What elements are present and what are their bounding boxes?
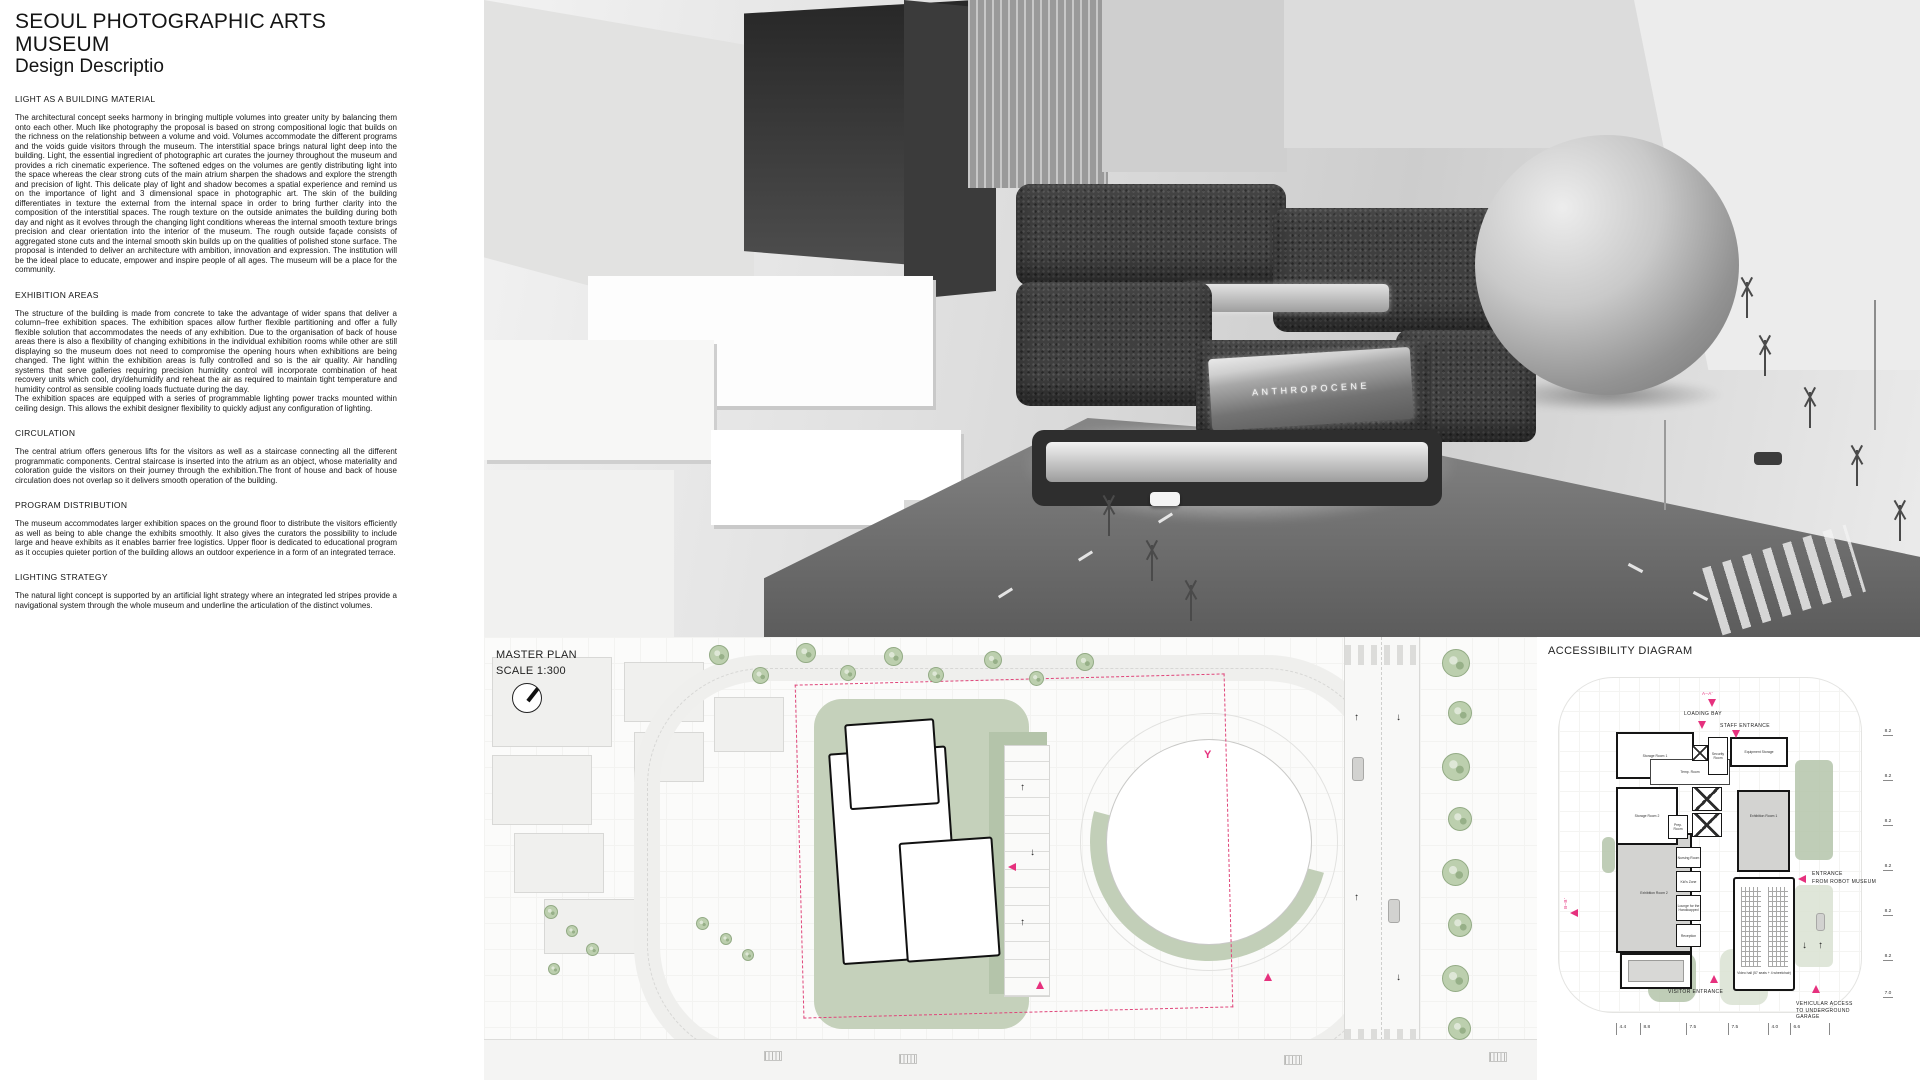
tree-icon (720, 933, 732, 945)
plaza-entry-marker-icon (1204, 749, 1211, 761)
tree-icon (840, 665, 856, 681)
room-label: Reception (1677, 933, 1700, 937)
vehicular-line1: VEHICULAR ACCESS (1796, 1001, 1853, 1008)
room-label: Prep. Room (1669, 823, 1687, 832)
room-label: Security Room (1709, 752, 1727, 761)
page-subtitle: Design Descriptio (15, 56, 397, 78)
visitor-entrance-label: VISITOR ENTRANCE (1668, 989, 1723, 997)
tree-icon (586, 943, 599, 956)
tree-icon (1856, 450, 1858, 486)
crosswalk (1345, 645, 1419, 665)
light-pole (1874, 300, 1876, 430)
vehicular-line3: GARAGE (1796, 1014, 1853, 1021)
museum-base (1032, 430, 1442, 506)
context-tower-striped (968, 0, 1108, 188)
stair-icon (1284, 1055, 1302, 1065)
staff-entrance-arrow-icon (1732, 730, 1740, 738)
site-entry-arrow-icon (1264, 973, 1272, 981)
traffic-arrow-icon (1354, 707, 1359, 725)
page-title: SEOUL PHOTOGRAPHIC ARTS MUSEUM (15, 10, 397, 56)
section-marker-a-flag-icon (1708, 699, 1716, 707)
room-label: Equipment Storage (1732, 750, 1786, 754)
tree-icon (1190, 585, 1192, 621)
section-circulation: CIRCULATION The central atrium offers ge… (15, 428, 397, 485)
white-volume (484, 470, 674, 637)
traffic-arrow-icon (1396, 707, 1401, 725)
room-video-hall: Video hall (57 seats + 4 wheelchair) (1733, 877, 1795, 991)
tree-icon (796, 643, 816, 663)
tree-icon (752, 667, 769, 684)
elevator-core (1692, 745, 1708, 761)
tree-icon (1764, 340, 1766, 376)
section-heading: EXHIBITION AREAS (15, 290, 397, 300)
car (1150, 492, 1180, 506)
light-pole (1664, 420, 1666, 510)
section-marker-a: A–A' (1702, 691, 1713, 696)
context-slab (1102, 0, 1287, 172)
tree-icon (1448, 913, 1472, 937)
north-arrow-icon (512, 683, 542, 713)
tree-icon (1029, 671, 1044, 686)
museum-mid-left-volume (1016, 282, 1212, 406)
room-nursing: Nursing Room (1676, 847, 1701, 868)
room-label: Storage Room 1 (1618, 753, 1692, 757)
white-volume (484, 340, 714, 460)
vehicular-access-arrow-icon (1812, 985, 1820, 993)
loading-bay-label: LOADING BAY (1684, 711, 1722, 719)
billboard-text: ANTHROPOCENE (1252, 380, 1370, 397)
car (1754, 452, 1782, 465)
dimension: 4.4 (1616, 1023, 1640, 1035)
accessibility-title: ACCESSIBILITY DIAGRAM (1548, 645, 1693, 657)
section-marker-b-flag-icon (1570, 909, 1578, 917)
vehicular-access-label: VEHICULAR ACCESS TO UNDERGROUND GARAGE (1796, 1001, 1853, 1021)
vertical-road (1344, 637, 1420, 1080)
tree-icon (1442, 965, 1469, 992)
dimension: 8.2 (1876, 774, 1900, 779)
room-label: Nursing Room (1677, 855, 1700, 859)
dimension: 4.0 (1768, 1023, 1790, 1035)
section-heading: LIGHT AS A BUILDING MATERIAL (15, 94, 397, 104)
accessibility-diagram: ACCESSIBILITY DIAGRAM Exhibition Room 2 … (1540, 637, 1920, 1080)
elevator-core (1692, 813, 1722, 837)
tree-icon (1442, 859, 1469, 886)
section-body: The central atrium offers generous lifts… (15, 447, 397, 485)
traffic-arrow-icon (1818, 935, 1823, 953)
loading-bay-arrow-icon (1698, 721, 1706, 729)
master-plan-scale: SCALE 1:300 (496, 664, 577, 680)
section-exhibition: EXHIBITION AREAS The structure of the bu… (15, 290, 397, 414)
robot-entrance-label: ENTRANCE FROM ROBOT MUSEUM (1812, 871, 1876, 886)
dimension: 6.6 (1790, 1023, 1830, 1035)
room-annex (1620, 953, 1692, 989)
section-program: PROGRAM DISTRIBUTION The museum accommod… (15, 500, 397, 557)
elevator-core (1692, 787, 1722, 811)
room-equipment: Equipment Storage (1730, 737, 1788, 767)
car-icon (1388, 899, 1400, 923)
room-kids: Kid's Zone (1676, 871, 1701, 892)
section-lighting: LIGHTING STRATEGY The natural light conc… (15, 572, 397, 610)
room-label: Kid's Zone (1677, 879, 1700, 883)
tree-icon (566, 925, 578, 937)
context-building (492, 755, 592, 825)
green-area (1795, 760, 1833, 860)
tree-icon (884, 647, 903, 666)
presentation-board: SEOUL PHOTOGRAPHIC ARTS MUSEUM Design De… (0, 0, 1920, 1080)
room-reception: Reception (1676, 924, 1701, 947)
master-plan-title: MASTER PLAN (496, 648, 577, 664)
tree-icon (928, 667, 944, 683)
room-label: Exhibition Room 1 (1739, 814, 1788, 818)
dimension: 7.0 (1876, 991, 1900, 996)
green-area (1602, 837, 1615, 873)
site-boundary-dashed (795, 673, 1234, 1018)
dimension: 8.2 (1876, 954, 1900, 959)
room-exhibition1: Exhibition Room 1 (1737, 790, 1790, 872)
tree-icon (1448, 1017, 1471, 1040)
section-body: The structure of the building is made fr… (15, 309, 397, 414)
tree-icon (1746, 282, 1748, 318)
room-security: Security Room (1708, 737, 1728, 775)
annex-terrace (1628, 960, 1684, 982)
bottom-road (484, 1039, 1537, 1080)
tree-icon (696, 917, 709, 930)
tree-icon (544, 905, 558, 919)
site-entry-arrow-icon (1036, 981, 1044, 989)
section-light: LIGHT AS A BUILDING MATERIAL The archite… (15, 94, 397, 275)
section-body: The museum accommodates larger exhibitio… (15, 519, 397, 557)
exterior-render: ANTHROPOCENE (484, 0, 1920, 637)
tree-icon (984, 651, 1002, 669)
traffic-arrow-icon (1396, 967, 1401, 985)
site-entry-arrow-icon (1008, 863, 1016, 871)
car-icon (1816, 913, 1825, 931)
tree-icon (1448, 701, 1472, 725)
room-label: Lounge for the Handicapped (1677, 904, 1700, 913)
section-marker-b: B–B' (1563, 898, 1568, 909)
section-body: The architectural concept seeks harmony … (15, 113, 397, 275)
museum-window-band (1184, 284, 1389, 312)
museum-lobby-glass (1046, 442, 1428, 482)
room-lounge: Lounge for the Handicapped (1676, 895, 1701, 921)
dimension: 8.8 (1640, 1023, 1686, 1035)
museum-screen-volume: ANTHROPOCENE (1196, 340, 1431, 440)
stair-icon (1489, 1052, 1507, 1062)
tree-icon (1151, 545, 1153, 581)
dimension: 8.2 (1876, 819, 1900, 824)
tree-icon (1442, 649, 1470, 677)
vertical-road-dash (1381, 637, 1382, 1080)
stair-icon (899, 1054, 917, 1064)
room-prep: Prep. Room (1668, 815, 1688, 839)
dimension: 8.2 (1876, 909, 1900, 914)
tree-icon (1076, 653, 1094, 671)
car-icon (1352, 757, 1364, 781)
visitor-entrance-arrow-icon (1710, 975, 1718, 983)
dimension: 7.5 (1728, 1023, 1768, 1035)
context-building (514, 833, 604, 893)
tree-icon (1899, 505, 1901, 541)
seat-rows (1741, 887, 1761, 967)
anthropocene-billboard: ANTHROPOCENE (1208, 347, 1414, 431)
tree-icon (709, 645, 729, 665)
section-heading: LIGHTING STRATEGY (15, 572, 397, 582)
traffic-arrow-icon (1354, 887, 1359, 905)
tree-icon (742, 949, 754, 961)
room-label: Video hall (57 seats + 4 wheelchair) (1735, 971, 1793, 975)
museum-upper-left-volume (1016, 184, 1286, 286)
section-heading: CIRCULATION (15, 428, 397, 438)
stair-icon (764, 1051, 782, 1061)
dimension: 7.5 (1686, 1023, 1728, 1035)
tree-icon (1448, 807, 1472, 831)
tree-icon (1442, 753, 1470, 781)
tree-icon (1108, 500, 1110, 536)
master-plan-label: MASTER PLAN SCALE 1:300 (496, 648, 577, 680)
section-body: The natural light concept is supported b… (15, 591, 397, 610)
dimension: 8.2 (1876, 864, 1900, 869)
seat-rows (1768, 887, 1788, 967)
dimension: 8.2 (1876, 729, 1900, 734)
robot-entrance-line2: FROM ROBOT MUSEUM (1812, 879, 1876, 887)
robot-entrance-line1: ENTRANCE (1812, 871, 1876, 879)
section-heading: PROGRAM DISTRIBUTION (15, 500, 397, 510)
master-plan: MASTER PLAN SCALE 1:300 (484, 637, 1537, 1080)
tree-icon (548, 963, 560, 975)
robot-entrance-arrow-icon (1798, 875, 1806, 883)
traffic-arrow-icon (1802, 935, 1807, 953)
green-area (1795, 885, 1833, 967)
staff-entrance-label: STAFF ENTRANCE (1720, 723, 1770, 731)
sphere-volume (1475, 135, 1739, 395)
description-panel: SEOUL PHOTOGRAPHIC ARTS MUSEUM Design De… (15, 10, 397, 610)
tree-icon (1809, 392, 1811, 428)
north-needle (526, 687, 539, 702)
